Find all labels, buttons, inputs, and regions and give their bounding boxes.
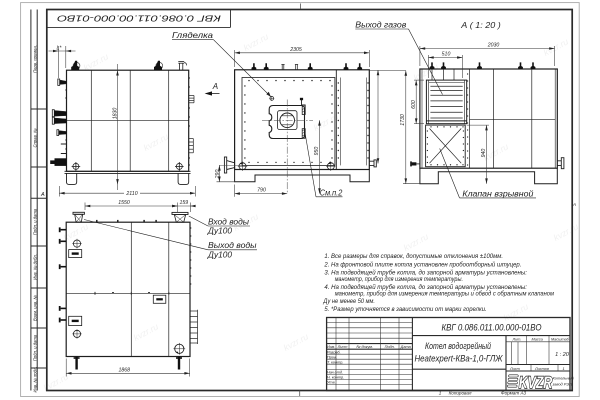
svg-text:2110: 2110	[125, 191, 137, 197]
svg-text:Гляделка: Гляделка	[172, 30, 213, 40]
svg-text:KVZR: KVZR	[519, 374, 553, 392]
svg-text:Утв.: Утв.	[327, 381, 336, 385]
svg-text:манометр, прибор для измерения: манометр, прибор для измерения температу…	[335, 276, 463, 283]
svg-text:Клапан взрывной: Клапан взрывной	[462, 188, 533, 198]
svg-text:Подп. и дата: Подп. и дата	[32, 208, 37, 235]
svg-text:Копировал: Копировал	[449, 391, 472, 396]
svg-text:Пров.: Пров.	[327, 355, 337, 359]
svg-text:Ду не менее 50 мм.: Ду не менее 50 мм.	[322, 298, 375, 305]
svg-text:Формат А3: Формат А3	[501, 391, 527, 396]
svg-text:Подп.: Подп.	[385, 345, 395, 349]
svg-text:510: 510	[442, 52, 451, 58]
svg-text:1: 1	[439, 391, 442, 396]
svg-text:Лист: Лист	[337, 345, 348, 349]
svg-text:1830: 1830	[112, 108, 118, 120]
svg-text:1. Все размеры для справок, до: 1. Все размеры для справок, допустимые о…	[324, 253, 503, 260]
svg-text:См.п.2: См.п.2	[320, 187, 343, 197]
svg-text:№ докум.: № докум.	[356, 345, 373, 349]
svg-text:Инв. № подл.: Инв. № подл.	[32, 367, 37, 393]
svg-text:А: А	[212, 82, 218, 91]
svg-text:завод РЭП: завод РЭП	[552, 381, 573, 386]
svg-text:2030: 2030	[487, 43, 500, 49]
svg-text:2305: 2305	[289, 47, 302, 53]
svg-text:Дата: Дата	[400, 345, 411, 349]
svg-text:Масса: Масса	[532, 337, 543, 341]
svg-text:1730: 1730	[400, 114, 406, 126]
svg-text:290: 290	[215, 170, 221, 180]
svg-text:Н. контр.: Н. контр.	[327, 376, 344, 380]
svg-text:Масштаб: Масштаб	[551, 337, 570, 341]
svg-text:КВГ 0.086.011.00.000-01ВО: КВГ 0.086.011.00.000-01ВО	[442, 322, 542, 332]
svg-text:Разраб.: Разраб.	[327, 350, 341, 354]
svg-text:Подп. и дата: Подп. и дата	[32, 334, 37, 361]
svg-text:940: 940	[481, 149, 487, 158]
svg-text:Heatexpert-КВа-1,0-ГЛЖ: Heatexpert-КВа-1,0-ГЛЖ	[415, 354, 504, 364]
svg-text:159: 159	[179, 200, 188, 206]
svg-text:Изм.: Изм.	[327, 345, 335, 349]
svg-text:Ду100: Ду100	[207, 249, 232, 259]
svg-text:Справ. №: Справ. №	[32, 128, 37, 147]
svg-text:790: 790	[257, 188, 266, 194]
svg-text:Выход газов: Выход газов	[355, 20, 407, 30]
svg-text:А: А	[40, 192, 45, 198]
svg-text:Ду100: Ду100	[207, 225, 232, 235]
svg-text:Листов: Листов	[534, 367, 549, 371]
svg-text:1868: 1868	[119, 368, 131, 374]
svg-text:1 : 20: 1 : 20	[555, 352, 570, 358]
svg-text:А: А	[572, 202, 576, 207]
svg-text:КВГ 0.086.011.00.000-01ВО: КВГ 0.086.011.00.000-01ВО	[57, 13, 221, 23]
svg-text:Лист: Лист	[509, 367, 520, 371]
svg-text:2. На фронтовой плите котла ус: 2. На фронтовой плите котла установлен п…	[323, 261, 521, 268]
svg-text:Лит.: Лит.	[512, 337, 522, 341]
svg-text:5. *Размер уточняется в зависи: 5. *Размер уточняется в зависимости от м…	[324, 306, 486, 313]
svg-text:1: 1	[563, 367, 565, 371]
svg-text:600: 600	[411, 100, 417, 109]
svg-text:Взам. инв. №: Взам. инв. №	[32, 295, 37, 321]
svg-text:Котел водогрейный: Котел водогрейный	[425, 341, 491, 351]
svg-text:Нач.отд.: Нач.отд.	[327, 371, 343, 375]
svg-text:Инв. № дубл.: Инв. № дубл.	[32, 254, 37, 280]
svg-text:манометр, прибор для измерения: манометр, прибор для измерения температу…	[335, 291, 555, 298]
svg-text:Перв. примен.: Перв. примен.	[32, 45, 37, 73]
svg-text:950: 950	[314, 147, 320, 156]
svg-text:1550: 1550	[118, 200, 130, 206]
svg-text:А ( 1: 20 ): А ( 1: 20 )	[460, 20, 501, 30]
svg-text:Котельный: Котельный	[553, 376, 575, 381]
svg-text:Т. контр.: Т. контр.	[327, 360, 343, 364]
